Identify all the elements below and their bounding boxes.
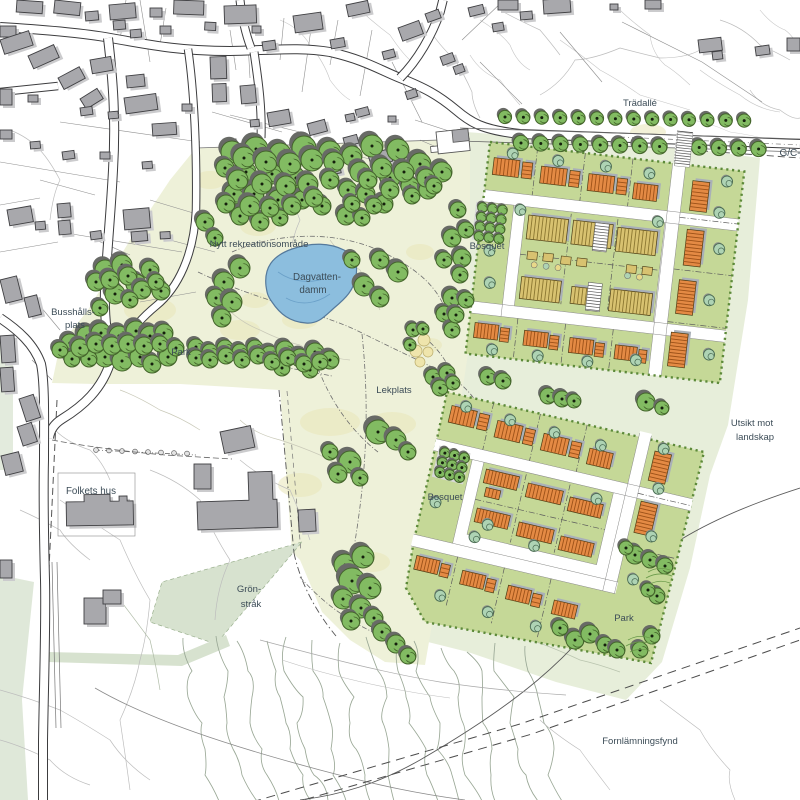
svg-text:Nytt rekreationsområde: Nytt rekreationsområde [210,239,309,250]
svg-text:Park: Park [614,613,634,624]
svg-text:Bosquet: Bosquet [470,241,505,252]
svg-text:Lekplats: Lekplats [376,385,412,396]
svg-text:Dagvatten-: Dagvatten- [293,272,341,283]
svg-text:Trädallé: Trädallé [623,98,657,109]
svg-text:Bosquet: Bosquet [428,492,463,503]
svg-text:Park: Park [171,347,191,358]
svg-text:Folkets hus: Folkets hus [66,486,116,497]
svg-text:damm: damm [299,285,326,296]
svg-text:Fornlämningsfynd: Fornlämningsfynd [602,736,678,747]
svg-text:Busshålls-: Busshålls- [51,307,95,318]
svg-text:G/C-: G/C- [779,148,800,159]
svg-text:landskap: landskap [736,432,774,443]
svg-text:Grön-: Grön- [237,584,261,595]
svg-text:Utsikt mot: Utsikt mot [731,418,774,429]
svg-text:plats: plats [65,320,85,331]
svg-text:stråk: stråk [241,599,262,610]
